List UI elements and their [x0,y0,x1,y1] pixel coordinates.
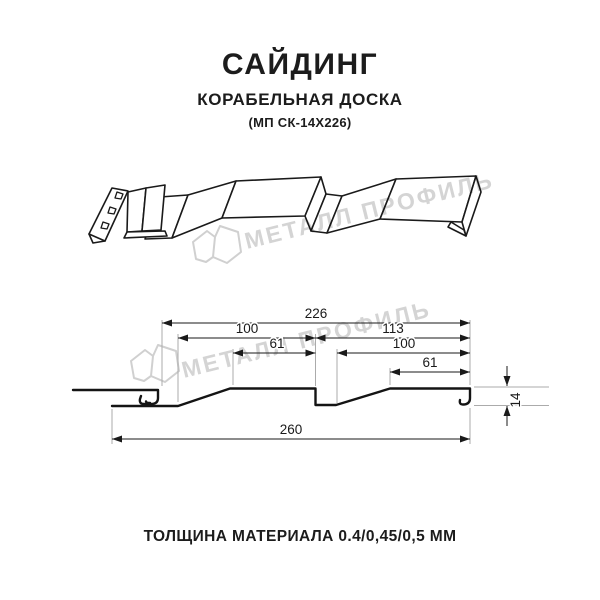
dimension-label: 226 [305,306,328,321]
dimension-label: 61 [269,336,284,351]
dimension-label: 100 [393,336,416,351]
metall-profil-logo-icon [193,226,241,263]
dimension-height: 14 [507,366,523,426]
dimension-small-right: 61 [390,355,470,372]
dimension-label: 14 [508,392,523,408]
metall-profil-logo-icon [131,345,179,382]
profile-outline [73,389,470,407]
technical-drawing-canvas: МЕТАЛЛ ПРОФИЛЬ МЕТАЛЛ ПРОФИЛЬ [0,0,600,600]
thickness-note: ТОЛЩИНА МАТЕРИАЛА 0.4/0,45/0,5 ММ [0,528,600,546]
dimension-label: 100 [236,321,259,336]
dimension-overall-bottom: 260 [112,422,470,439]
dimension-label: 113 [382,321,404,336]
dimension-label: 61 [422,355,437,370]
product-drawing-card: САЙДИНГ КОРАБЕЛЬНАЯ ДОСКА (МП СК-14Х226) [0,0,600,600]
dimension-label: 260 [280,422,303,437]
